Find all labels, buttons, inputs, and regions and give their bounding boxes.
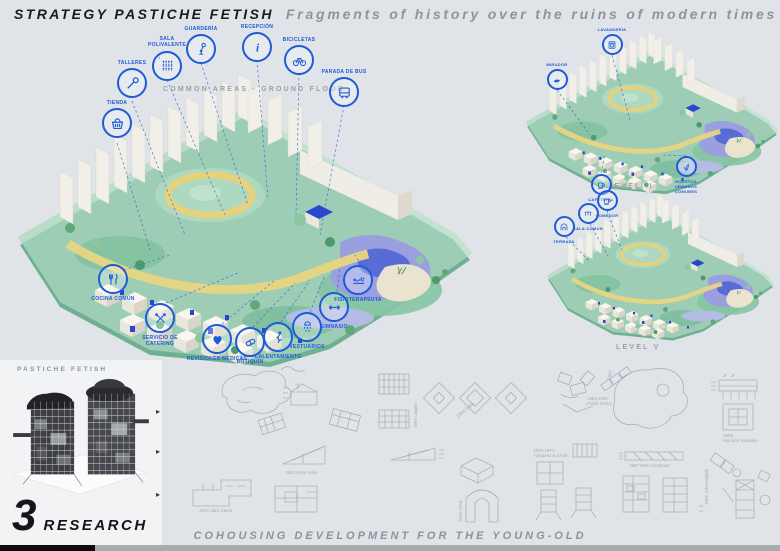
leader-lines (117, 55, 686, 327)
callout-label: CALENTAMIENTO (255, 354, 302, 360)
basket-icon (102, 108, 132, 138)
laundry-icon (602, 34, 623, 55)
callout-revisiones-medicas: REVISIONES MÉDICAS (180, 324, 254, 362)
callout-botiquin: BOTIQUÍN (213, 327, 287, 365)
level2-axon (527, 32, 777, 195)
callout-recepcion: RECEPCIÓN (220, 24, 294, 62)
callout-l2-huertos: HUERTOS URBANOS COMUNES (649, 156, 723, 194)
scaffold-model (7, 378, 155, 496)
right-arrow-icon: ▸ (156, 491, 160, 499)
callout-label: SALA POLIVALENTE (144, 36, 190, 49)
title-subtitle: Fragments of history over the ruins of m… (286, 6, 777, 22)
callout-label: HUERTOS URBANOS COMUNES (669, 179, 703, 194)
pill-icon (235, 327, 265, 357)
ref-caption: 1970-1972 (533, 448, 555, 453)
bottom-dark-strip (0, 545, 95, 551)
callout-label: SERVICIO DE CATERING (137, 335, 183, 348)
callout-label: GIMNASIO (320, 324, 348, 330)
stretching-icon (263, 322, 293, 352)
heart-icon (202, 324, 232, 354)
massage-icon (343, 265, 373, 295)
callout-label: BICICLETAS (283, 37, 316, 43)
callout-label: GUARDERÍA (185, 26, 218, 32)
arch-icon (554, 216, 575, 237)
research-tag: PASTICHE FETISH (17, 366, 107, 373)
callout-l5-comedor: COMEDOR (570, 190, 644, 218)
callout-l5-sala-comun: SALA COMÚN (551, 203, 625, 231)
callout-label: RECEPCIÓN (241, 24, 273, 30)
callout-label: BOTIQUÍN (237, 359, 264, 365)
title-strategy: STRATEGY PASTICHE FETISH (14, 6, 274, 22)
callout-guarderia: GUARDERÍA (164, 26, 238, 64)
common-areas-heading: COMMON AREAS - GROUND FLOOR (163, 86, 345, 93)
callout-servicio-de-catering: SERVICIO DE CATERING (123, 303, 197, 348)
callout-talleres: TALLERES (95, 60, 169, 98)
callout-label: COMEDOR (596, 213, 619, 218)
wrench-icon (117, 68, 147, 98)
shower-icon (292, 312, 322, 342)
callout-label: COCINA COMÚN (91, 296, 134, 302)
ground-floor-axon (20, 74, 470, 367)
callout-label: REVISIONES MÉDICAS (187, 356, 247, 362)
callout-label: PARADA DE BUS (321, 69, 366, 75)
ref-caption: 1984-1987 (587, 396, 609, 401)
callout-l2-lavanderia: LAVANDERÍA (575, 27, 649, 55)
callout-fisioterapeuta: FISIOTERAPEUTA (321, 265, 395, 303)
bottom-gray-strip (95, 545, 780, 551)
callout-label: FISIOTERAPEUTA (334, 297, 381, 303)
callout-label: MIRADOR (546, 62, 567, 67)
callout-label: LAVANDERÍA (598, 27, 627, 32)
callout-gimnasio: GIMNASIO (297, 292, 371, 330)
ref-caption: Kiyonori Kikutake (723, 438, 758, 443)
right-arrow-icon: ▸ (156, 448, 160, 456)
callout-label: CAFETERÍA (588, 197, 614, 202)
footer-caption: COHOUSING DEVELOPMENT FOR THE YOUNG-OLD (0, 530, 780, 542)
presentation-board: { "header": { "title": "STRATEGY PASTICH… (0, 0, 780, 551)
cutlery-icon (98, 264, 128, 294)
double-arrow-icon (319, 292, 349, 322)
audience-icon (152, 51, 182, 81)
ref-caption: 1953 Alvar Aalto (285, 470, 318, 475)
callout-bicicletas: BICICLETAS (262, 37, 336, 75)
callout-calentamiento: CALENTAMIENTO (241, 322, 315, 360)
level5-label: LEVEL V (616, 344, 660, 351)
info-icon (242, 32, 272, 62)
crossed-utensils-icon (145, 303, 175, 333)
callout-l2-mirador: MIRADOR (520, 62, 594, 90)
callout-label: TIENDA (107, 100, 127, 106)
plant-icon (676, 156, 697, 177)
level2-label: LEVEL II (608, 183, 654, 190)
ref-caption: 1958 (723, 433, 734, 438)
reference-drawings: 1953 Alvar Aalto 1972 Jørn Utzon 1966 Un… (163, 360, 780, 538)
people-icon (578, 203, 599, 224)
right-arrow-icon: ▸ (156, 408, 160, 416)
ref-caption: Frank Gehry (587, 401, 613, 406)
callout-tienda: TIENDA (80, 100, 154, 138)
ref-caption: 1987 Rem Koolhaas (629, 463, 671, 468)
ref-caption: 1972 Jørn Utzon (199, 508, 233, 513)
callout-label: TERRAZA (553, 239, 574, 244)
callout-label: TALLERES (118, 60, 146, 66)
bird-icon (547, 69, 568, 90)
callout-sala-polivalente: SALA POLIVALENTE (130, 36, 204, 81)
page-title: STRATEGY PASTICHE FETISHFragments of his… (14, 6, 777, 22)
ref-caption: 1966 Ungers (413, 401, 418, 428)
child-balloon-icon (186, 34, 216, 64)
ref-caption: 1987 (606, 369, 614, 380)
callout-vestuarios: VESTUARIOS (270, 312, 344, 350)
ref-caption: 1964-1966 (455, 401, 475, 419)
ref-caption: 1925-1926 (458, 500, 463, 522)
cup-icon (597, 190, 618, 211)
bicycle-icon (284, 45, 314, 75)
ref-caption: Tusquets & Clotet (533, 453, 569, 458)
callout-cocina-comun: COCINA COMÚN (76, 264, 150, 302)
ref-caption: 1985 John Hejduk (704, 468, 709, 505)
callout-l5-terraza: TERRAZA (527, 216, 601, 244)
level5-axon (548, 194, 773, 341)
callout-label: SALA COMÚN (573, 226, 603, 231)
callout-label: VESTUARIOS (289, 344, 325, 350)
